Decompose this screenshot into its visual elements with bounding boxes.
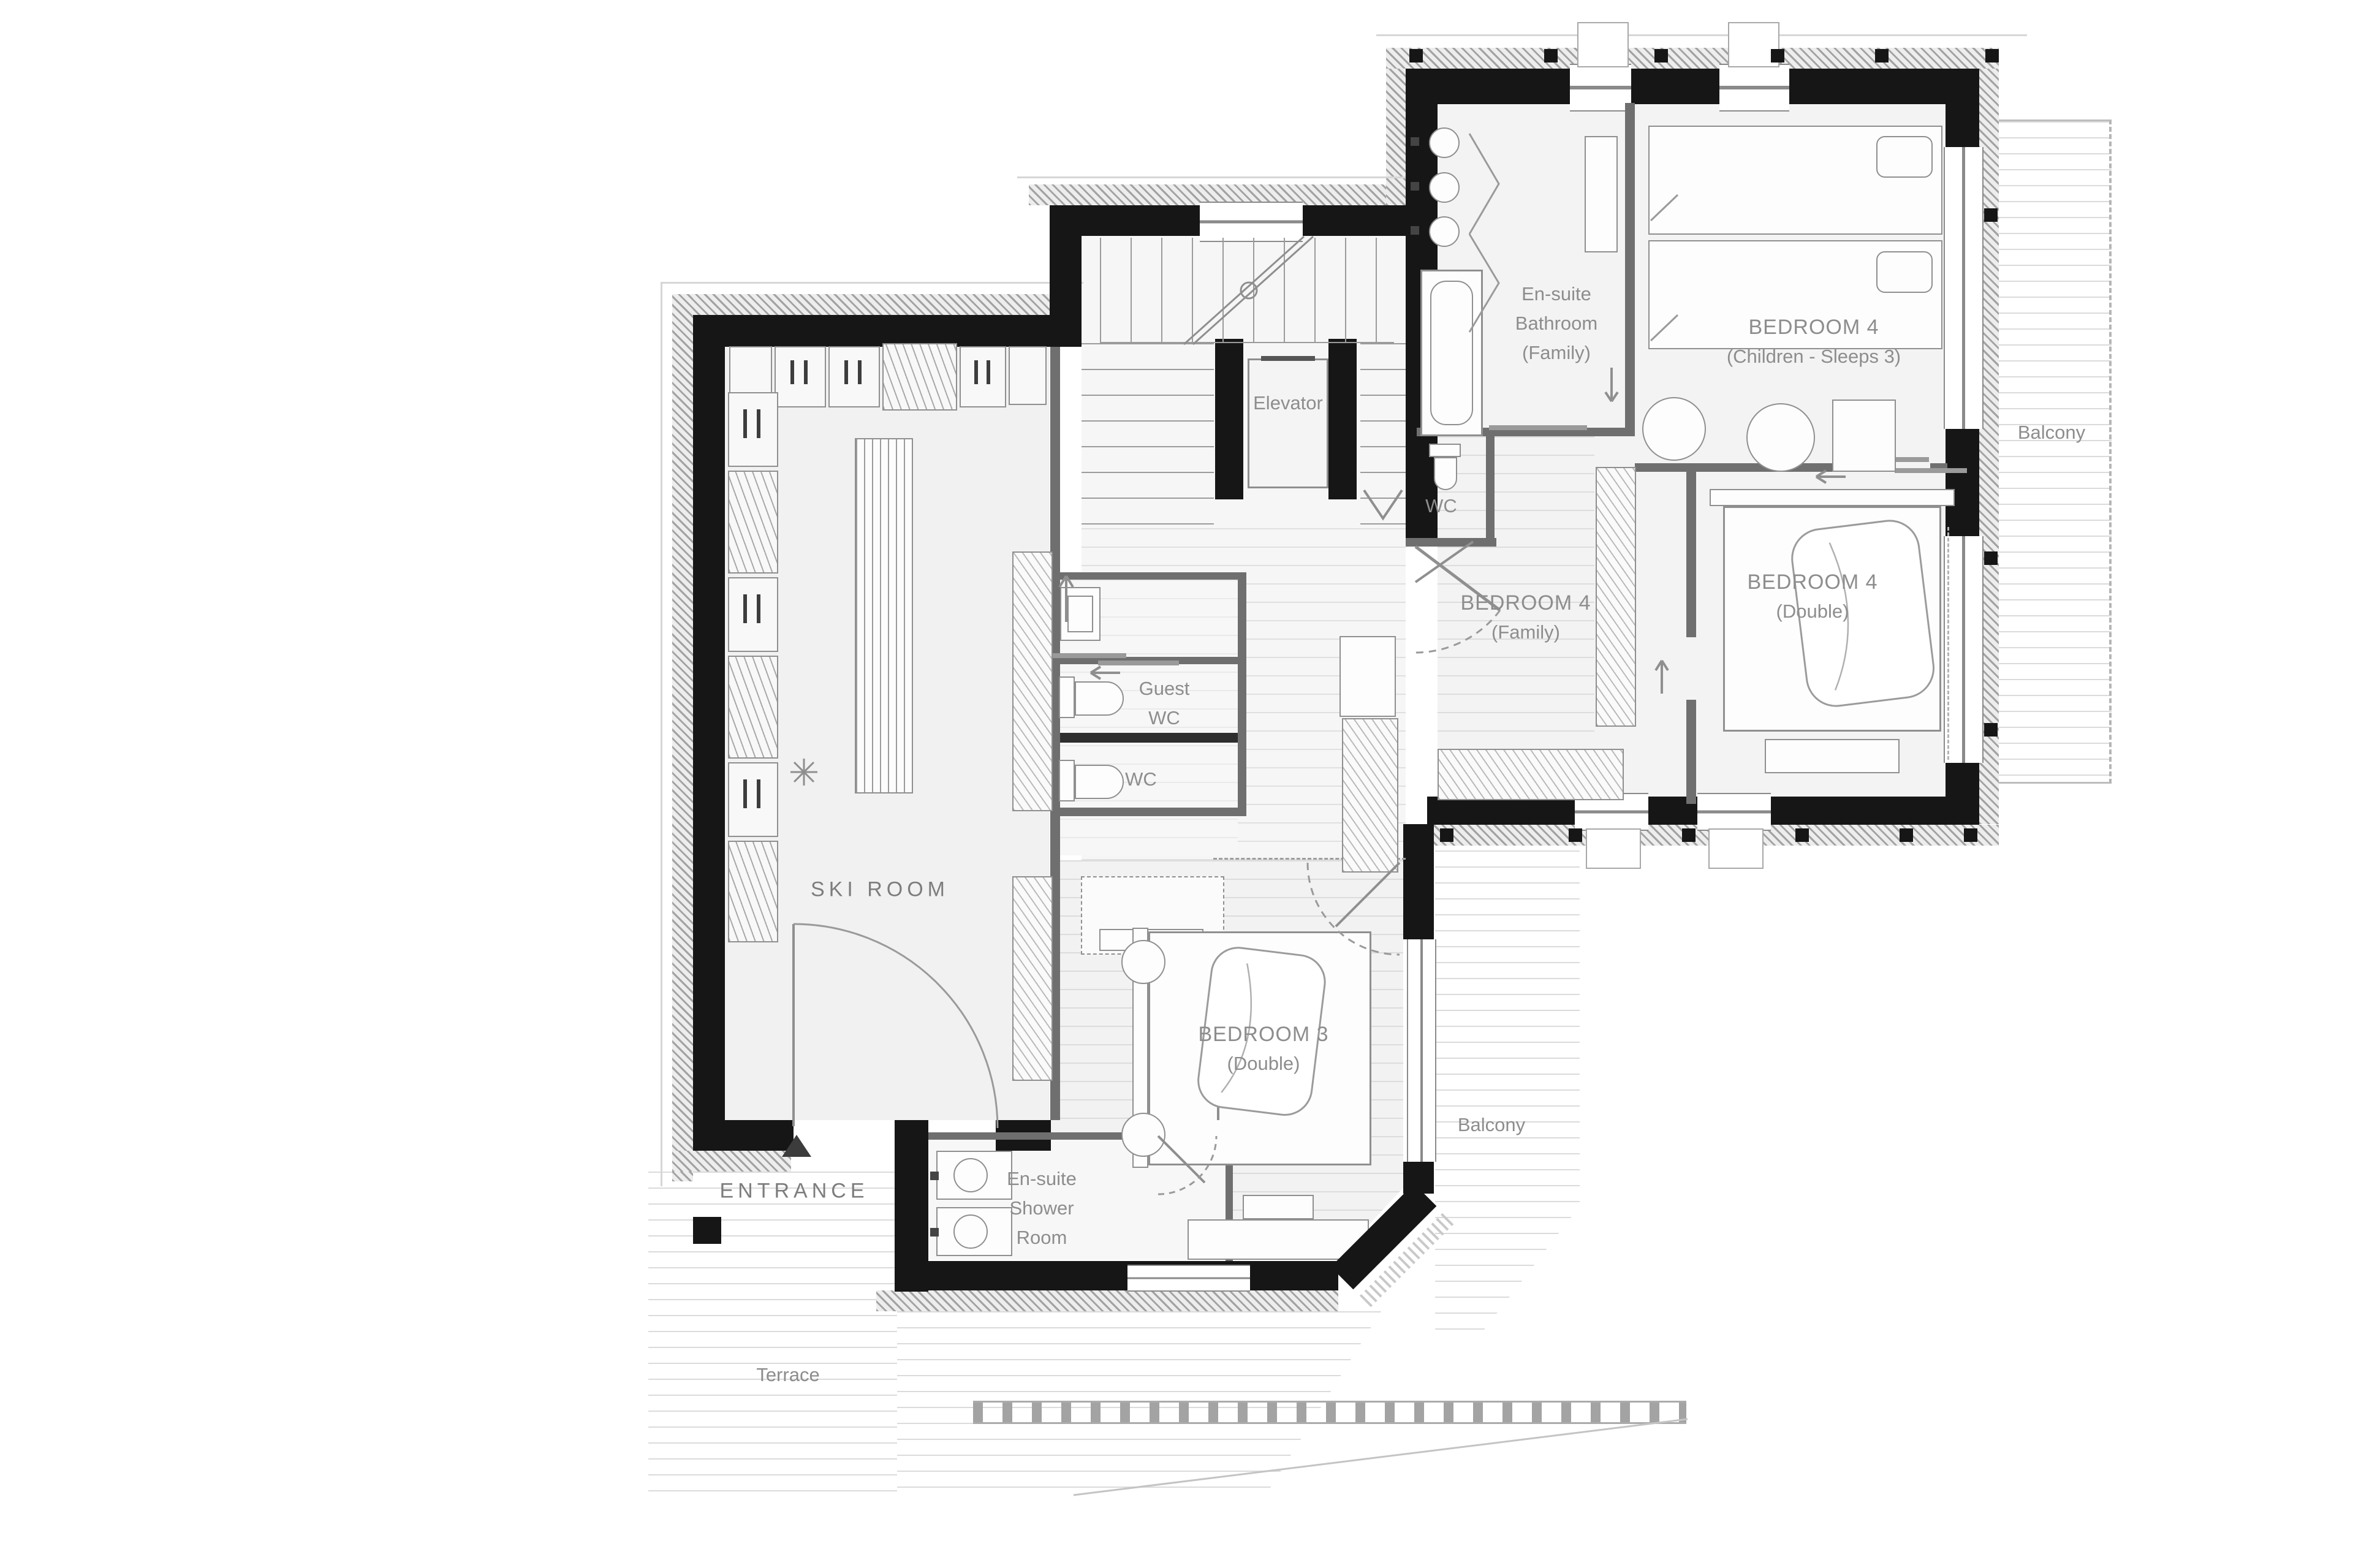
bedside-table xyxy=(1121,1113,1165,1157)
wall-entrance-left xyxy=(693,1120,794,1151)
label-text: WC xyxy=(1125,765,1157,794)
hall-closet xyxy=(1342,718,1398,873)
elevator-cab xyxy=(1248,358,1328,488)
toilet-tank xyxy=(1429,444,1461,457)
ski-locker-hooks xyxy=(728,392,778,467)
shutter xyxy=(1577,22,1629,67)
sliding-door-leaf xyxy=(1098,661,1179,665)
tick xyxy=(1654,49,1668,62)
tick xyxy=(1875,49,1889,62)
roof-line xyxy=(1017,176,1409,178)
hatch-top-skiroom xyxy=(672,294,1080,315)
balcony-lower-deck xyxy=(1435,835,1580,1337)
ski-locker xyxy=(1009,346,1047,405)
ski-locker-hooks xyxy=(728,577,778,652)
label-balcony-lower: Balcony xyxy=(1458,1110,1525,1140)
label-text: BEDROOM 4 xyxy=(1460,588,1591,618)
stairs-upper-flight xyxy=(1100,238,1394,343)
label-text: BEDROOM 4 xyxy=(1727,312,1901,342)
tap xyxy=(1411,137,1419,146)
sliding-door-leaf xyxy=(1053,653,1126,658)
roof-line xyxy=(661,282,1083,284)
wall-skiroom-top xyxy=(693,315,1082,347)
label-balcony-upper: Balcony xyxy=(2018,418,2085,447)
basin xyxy=(953,1158,988,1192)
family-wardrobe xyxy=(1438,749,1624,800)
label-text: (Family) xyxy=(1460,618,1591,647)
window-right-upper xyxy=(1944,147,1984,429)
tick xyxy=(1984,208,1998,222)
label-text: WC xyxy=(1139,703,1190,733)
stairs-left-flight xyxy=(1082,343,1214,526)
ski-rack xyxy=(728,656,778,759)
entrance-marker xyxy=(782,1135,811,1157)
tap xyxy=(1411,226,1419,235)
tick xyxy=(1985,49,1999,62)
wall-children-double-divider xyxy=(1635,463,1863,472)
tick xyxy=(1569,828,1582,842)
bed-bench xyxy=(1765,739,1900,773)
hatch-left-bedroom4-upper xyxy=(1386,69,1406,205)
wall-skiroom-left xyxy=(693,315,725,1151)
ski-locker-hooks xyxy=(728,762,778,837)
play-table xyxy=(1832,400,1896,472)
window-top-2 xyxy=(1719,64,1789,112)
label-ski-room: SKI ROOM xyxy=(811,878,949,902)
family-closet-right xyxy=(1596,467,1636,727)
skiroom-shelving-1 xyxy=(1012,551,1053,811)
wall-bedroom4-top xyxy=(1406,69,1979,104)
bathtub-basin xyxy=(1430,281,1473,425)
label-text: Shower xyxy=(1007,1194,1077,1223)
wall-bedroom3-right-pier xyxy=(1403,1162,1434,1194)
label-text: Terrace xyxy=(756,1360,819,1390)
tick xyxy=(1544,49,1558,62)
basin xyxy=(1429,127,1460,158)
ski-locker-hooks xyxy=(960,346,1006,407)
label-text: (Family) xyxy=(1515,338,1597,368)
label-text: (Double) xyxy=(1198,1049,1328,1078)
basin xyxy=(1429,216,1460,247)
basin xyxy=(1429,172,1460,203)
tick xyxy=(1795,828,1809,842)
window-bedroom3-bottom xyxy=(1127,1265,1250,1292)
terrace-deck xyxy=(648,1172,897,1496)
label-text: Guest xyxy=(1139,674,1190,703)
hatch-entrance xyxy=(672,1151,791,1172)
sliding-door-leaf xyxy=(1895,468,1967,473)
tick xyxy=(1900,828,1913,842)
pillow xyxy=(1876,251,1933,293)
label-text: Balcony xyxy=(2018,418,2085,447)
window-bottom-2 xyxy=(1697,793,1771,831)
label-elevator: Elevator xyxy=(1253,388,1323,418)
hall-cabinet xyxy=(1339,636,1396,717)
elevator-shaft-right xyxy=(1328,339,1357,499)
tick xyxy=(1984,551,1998,565)
tv xyxy=(1243,1195,1314,1219)
wall-guestwc-bottom xyxy=(1060,733,1245,743)
wall-wc-bottom xyxy=(1050,808,1245,816)
sliding-door-leaf xyxy=(1489,425,1587,430)
label-text: En-suite xyxy=(1515,279,1597,309)
pouf-chair xyxy=(1746,403,1815,472)
label-text: (Children - Sleeps 3) xyxy=(1727,342,1901,371)
tick xyxy=(1440,828,1453,842)
wall-wc-landing-bottom xyxy=(1406,538,1496,547)
hatch-left-skiroom xyxy=(672,294,693,1181)
window-bedroom3-right xyxy=(1407,939,1436,1162)
label-bedroom3: BEDROOM 3 (Double) xyxy=(1198,1020,1328,1078)
shutter xyxy=(1708,828,1764,869)
wall-family-double-divider-upper xyxy=(1686,466,1696,637)
tap xyxy=(1411,182,1419,191)
roof-line xyxy=(661,282,662,1186)
window-stairhall xyxy=(1200,202,1303,242)
tv-sideboard xyxy=(1188,1219,1369,1260)
hatch-bottom-bedroom3 xyxy=(876,1290,1338,1311)
stairs-right-flight xyxy=(1360,343,1406,527)
label-ensuite-shower: En-suite Shower Room xyxy=(1007,1164,1077,1252)
label-entrance: ENTRANCE xyxy=(719,1180,868,1203)
label-text: BEDROOM 3 xyxy=(1198,1020,1328,1049)
label-text: Room xyxy=(1007,1223,1077,1252)
label-text: SKI ROOM xyxy=(811,878,949,902)
toilet-tank xyxy=(1059,676,1075,718)
washbasin xyxy=(1067,596,1093,632)
skiroom-shelving-2 xyxy=(1012,876,1053,1081)
wall-wcblock-right xyxy=(1238,572,1246,816)
tick xyxy=(1409,49,1423,62)
shutter xyxy=(1586,828,1641,869)
label-ensuite-bathroom: En-suite Bathroom (Family) xyxy=(1515,279,1597,368)
label-text: En-suite xyxy=(1007,1164,1077,1194)
window-right-lower xyxy=(1944,536,1984,763)
floor-plan: Elevator En-suite Bathroom (Family) BEDR… xyxy=(0,0,2353,1568)
toilet-bowl xyxy=(1434,457,1457,490)
ski-locker-hooks xyxy=(828,346,880,407)
label-guest-wc: Guest WC xyxy=(1139,674,1190,733)
label-text: Elevator xyxy=(1253,388,1323,418)
wall-corner-post xyxy=(693,1217,721,1244)
wall-family-double-divider-lower xyxy=(1686,700,1696,804)
tap xyxy=(930,1228,939,1237)
roof-line xyxy=(1376,34,2027,36)
label-bedroom4-double: BEDROOM 4 (Double) xyxy=(1747,567,1877,626)
toilet-tank xyxy=(1059,760,1075,801)
label-terrace: Terrace xyxy=(756,1360,819,1390)
ski-rack xyxy=(728,471,778,574)
toilet-bowl xyxy=(1075,765,1124,799)
balcony-upper-deck xyxy=(1999,119,2112,784)
towel-radiator xyxy=(1585,136,1618,252)
bedside-table xyxy=(1121,940,1165,984)
toilet-bowl xyxy=(1075,681,1124,716)
label-wc-landing: WC xyxy=(1425,491,1457,521)
label-text: (Double) xyxy=(1747,597,1877,626)
tap xyxy=(930,1172,939,1180)
radiator xyxy=(855,438,913,793)
elevator-door xyxy=(1261,356,1315,361)
elevator-shaft-left xyxy=(1215,339,1243,499)
wall-alcove-top xyxy=(1060,572,1238,580)
ski-rack xyxy=(728,841,778,942)
pillow xyxy=(1876,136,1933,178)
label-text: BEDROOM 4 xyxy=(1747,567,1877,597)
label-text: Bathroom xyxy=(1515,309,1597,338)
curtain-line xyxy=(1947,527,1949,760)
wall-wc-landing-right xyxy=(1486,436,1495,547)
tick xyxy=(1964,828,1977,842)
tick xyxy=(1682,828,1696,842)
ski-locker-hooks xyxy=(775,346,826,407)
wall-bedroom3-right-upper xyxy=(1403,824,1434,939)
window-top-1 xyxy=(1570,64,1631,112)
tick xyxy=(1771,49,1784,62)
label-wc-inner: WC xyxy=(1125,765,1157,794)
ski-rack xyxy=(882,343,957,411)
label-bedroom4-family: BEDROOM 4 (Family) xyxy=(1460,588,1591,647)
hatch-top-bedroom4 xyxy=(1386,48,1999,69)
wall-bathroom-children-divider xyxy=(1625,103,1635,436)
label-bedroom4-children: BEDROOM 4 (Children - Sleeps 3) xyxy=(1727,312,1901,371)
tick xyxy=(1984,723,1998,737)
wall-bedroom3-bottom xyxy=(895,1261,1338,1290)
headboard xyxy=(1710,489,1955,506)
pouf-chair xyxy=(1642,397,1706,461)
label-text: Balcony xyxy=(1458,1110,1525,1140)
label-text: ENTRANCE xyxy=(719,1180,868,1203)
basin xyxy=(953,1214,988,1249)
label-text: WC xyxy=(1425,491,1457,521)
terrace-bench-rail xyxy=(973,1401,1686,1424)
